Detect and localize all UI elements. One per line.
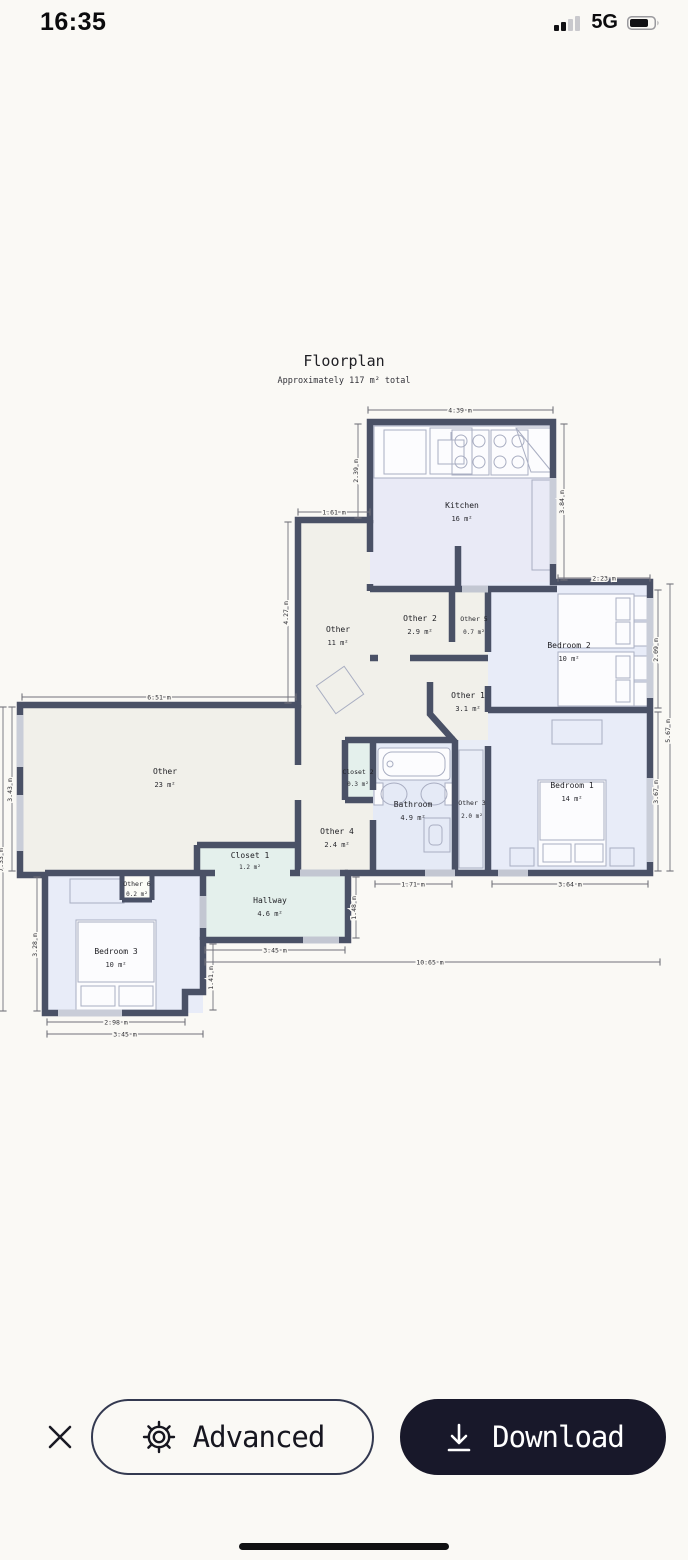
kitchen-area: 16 m² <box>451 515 472 523</box>
bedroom2-area: 10 m² <box>558 655 579 663</box>
dim-entry-width: 1.61 m <box>322 509 346 517</box>
floorplan-title: Floorplan <box>0 352 688 370</box>
hallway-top-door-sill <box>300 870 340 877</box>
floorplan-image: Kitchen 16 m² Other 11 m² Other 2 2.9 m²… <box>0 390 688 1050</box>
dim-bedroom1-bottom-width: 3.64 m <box>558 881 582 889</box>
hallway-area: 4.6 m² <box>257 910 282 918</box>
bathroom-area: 4.9 m² <box>400 814 425 822</box>
bedroom1-door-sill <box>498 870 528 877</box>
entry-label: Other <box>326 625 350 634</box>
kitchen-door-sill <box>462 586 488 593</box>
closet1-label: Closet 1 <box>231 851 270 860</box>
status-bar: 16:35 5G <box>0 0 688 54</box>
kitchen-label: Kitchen <box>445 501 479 510</box>
close-button[interactable] <box>42 1419 78 1455</box>
bedroom3-window <box>58 1010 122 1017</box>
dim-hallway-bottom-width: 3.45 m <box>263 947 287 955</box>
download-icon <box>442 1419 476 1455</box>
dim-bedroom2-right-height: 2.09 m <box>652 638 660 662</box>
dim-kitchen-width: 4.39 m <box>448 407 472 415</box>
room-hallway <box>203 873 345 940</box>
other4-label: Other 4 <box>320 827 354 836</box>
dim-bedroom3-bottom-inner: 2.98 m <box>104 1019 128 1027</box>
dim-bottom-total-width: 10.65 m <box>416 959 443 967</box>
bedroom2-label: Bedroom 2 <box>547 641 591 650</box>
home-indicator[interactable] <box>239 1543 449 1550</box>
other2-label: Other 2 <box>403 614 437 623</box>
bathtub <box>378 748 450 780</box>
entry-area: 11 m² <box>327 639 348 647</box>
bedroom3-door-sill <box>200 896 207 928</box>
dim-entry-height: 4.27 m <box>282 601 290 625</box>
dim-bedroom3-right-height: 1.41 m <box>207 966 215 990</box>
living-window-2 <box>17 795 24 851</box>
other6-area: 0.2 m² <box>126 891 148 898</box>
bedroom1-area: 14 m² <box>561 795 582 803</box>
other5-label: Other 5 <box>460 615 487 623</box>
signal-strength-icon <box>554 15 582 31</box>
closet2-area: 0.3 m² <box>347 781 369 788</box>
bedroom1-label: Bedroom 1 <box>550 781 594 790</box>
other1-label: Other 1 <box>451 691 485 700</box>
hallway-bottom-door-sill <box>303 937 339 944</box>
dim-living-width: 6.51 m <box>147 694 171 702</box>
other1-area: 3.1 m² <box>455 705 480 713</box>
other4-area: 2.4 m² <box>324 841 349 849</box>
other5-area: 0.7 m² <box>463 629 485 636</box>
dim-bathroom-bottom-width: 1.71 m <box>401 881 425 889</box>
closet2-label: Closet 2 <box>342 768 373 776</box>
living-label: Other <box>153 767 177 776</box>
dim-left-total-height: 7.33 m <box>0 848 5 872</box>
advanced-button-label: Advanced <box>193 1420 325 1454</box>
bathroom-label: Bathroom <box>394 800 433 809</box>
other6-label: Other 6 <box>123 880 150 888</box>
dim-right-total-height: 5.67 m <box>664 719 672 743</box>
advanced-button[interactable]: Advanced <box>91 1399 374 1475</box>
dim-kitchen-left-height: 2.39 m <box>352 459 360 483</box>
other2-area: 2.9 m² <box>407 628 432 636</box>
living-area: 23 m² <box>154 781 175 789</box>
other3-label: Other 3 <box>458 799 485 807</box>
living-window-1 <box>17 715 24 767</box>
dim-bedroom3-bottom-outer: 3.45 m <box>113 1031 137 1039</box>
bathroom-door-sill <box>425 870 455 877</box>
closet1-area: 1.2 m² <box>239 864 261 871</box>
bedroom3-area: 10 m² <box>105 961 126 969</box>
clock: 16:35 <box>40 8 106 37</box>
other3-area: 2.0 m² <box>461 813 483 820</box>
close-icon <box>45 1422 75 1452</box>
action-bar: Advanced Download <box>0 1398 688 1476</box>
dim-bedroom1-right-height: 3.67 m <box>652 780 660 804</box>
download-button[interactable]: Download <box>400 1399 666 1475</box>
dim-bedroom2-top-width: 2.23 m <box>592 575 616 583</box>
dim-hallway-right-height: 1.48 m <box>350 896 358 920</box>
download-button-label: Download <box>492 1420 624 1454</box>
dim-bedroom3-left-height: 3.28 m <box>31 933 39 957</box>
gear-icon <box>141 1419 177 1455</box>
hallway-label: Hallway <box>253 896 287 905</box>
kitchen-window <box>550 478 557 564</box>
battery-icon <box>627 15 660 31</box>
floorplan-subtitle: Approximately 117 m² total <box>0 376 688 386</box>
dim-kitchen-right-height: 3.84 m <box>558 490 566 514</box>
network-type-label: 5G <box>591 11 618 34</box>
bedroom3-label: Bedroom 3 <box>94 947 138 956</box>
dim-living-left-height: 3.43 m <box>6 778 14 802</box>
